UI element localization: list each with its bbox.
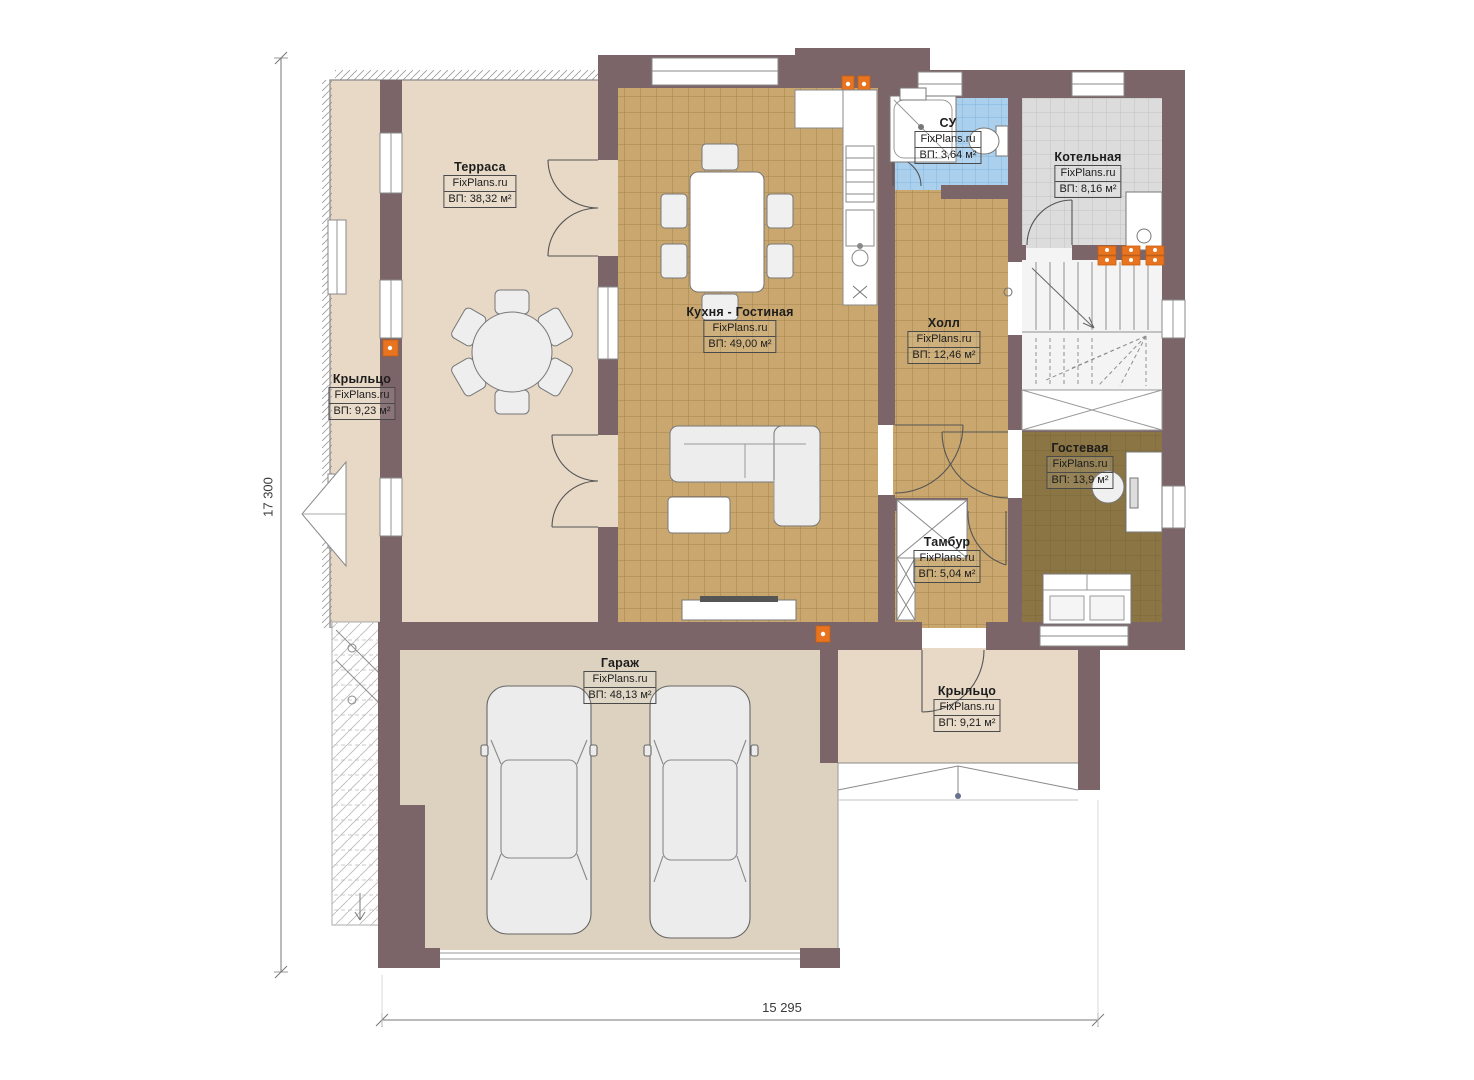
- room-name: СУ: [914, 116, 981, 130]
- room-area: ВП: 8,16 м²: [1055, 181, 1120, 197]
- room-label-porch-right: Крыльцо FixPlans.ru ВП: 9,21 м²: [933, 684, 1000, 732]
- room-label-hall: Холл FixPlans.ru ВП: 12,46 м²: [907, 316, 980, 364]
- floor-plan-drawing: [0, 0, 1474, 1080]
- room-label-kitchen-living: Кухня - Гостиная FixPlans.ru ВП: 49,00 м…: [686, 305, 793, 353]
- floor-plan-canvas: Терраса FixPlans.ru ВП: 38,32 м² Кухня -…: [0, 0, 1474, 1080]
- car-1: [481, 686, 597, 934]
- room-info-box: FixPlans.ru ВП: 13,9 м²: [1046, 456, 1113, 489]
- room-area: ВП: 48,13 м²: [584, 687, 655, 703]
- room-name: Котельная: [1054, 150, 1121, 164]
- room-area: ВП: 9,23 м²: [329, 403, 394, 419]
- brand-link[interactable]: FixPlans.ru: [914, 551, 979, 566]
- brand-link[interactable]: FixPlans.ru: [704, 321, 775, 336]
- brand-link[interactable]: FixPlans.ru: [1055, 166, 1120, 181]
- room-label-porch-left: Крыльцо FixPlans.ru ВП: 9,23 м²: [328, 372, 395, 420]
- room-info-box: FixPlans.ru ВП: 12,46 м²: [907, 331, 980, 364]
- brand-link[interactable]: FixPlans.ru: [329, 388, 394, 403]
- dimension-height-label: 17 300: [261, 477, 276, 517]
- brand-link[interactable]: FixPlans.ru: [934, 700, 999, 715]
- room-label-boiler: Котельная FixPlans.ru ВП: 8,16 м²: [1054, 150, 1121, 198]
- room-label-garage: Гараж FixPlans.ru ВП: 48,13 м²: [583, 656, 656, 704]
- room-info-box: FixPlans.ru ВП: 8,16 м²: [1054, 165, 1121, 198]
- room-area: ВП: 38,32 м²: [444, 191, 515, 207]
- room-info-box: FixPlans.ru ВП: 49,00 м²: [703, 320, 776, 353]
- room-area: ВП: 12,46 м²: [908, 347, 979, 363]
- room-area: ВП: 5,04 м²: [914, 566, 979, 582]
- room-label-terrace: Терраса FixPlans.ru ВП: 38,32 м²: [443, 160, 516, 208]
- room-info-box: FixPlans.ru ВП: 5,04 м²: [913, 550, 980, 583]
- brand-link[interactable]: FixPlans.ru: [584, 672, 655, 687]
- room-info-box: FixPlans.ru ВП: 9,23 м²: [328, 387, 395, 420]
- tv-bench: [682, 596, 796, 620]
- dimension-width-label: 15 295: [762, 1000, 802, 1015]
- boiler-fixtures: [1126, 192, 1162, 250]
- room-info-box: FixPlans.ru ВП: 38,32 м²: [443, 175, 516, 208]
- room-name: Гостевая: [1046, 441, 1113, 455]
- canopy-right: [838, 763, 1078, 800]
- room-label-vestibule: Тамбур FixPlans.ru ВП: 5,04 м²: [913, 535, 980, 583]
- brand-link[interactable]: FixPlans.ru: [915, 132, 980, 147]
- room-info-box: FixPlans.ru ВП: 3,64 м²: [914, 131, 981, 164]
- room-name: Кухня - Гостиная: [686, 305, 793, 319]
- room-label-guest: Гостевая FixPlans.ru ВП: 13,9 м²: [1046, 441, 1113, 489]
- room-label-bathroom: СУ FixPlans.ru ВП: 3,64 м²: [914, 116, 981, 164]
- brand-link[interactable]: FixPlans.ru: [1047, 457, 1112, 472]
- room-area: ВП: 13,9 м²: [1047, 472, 1112, 488]
- brand-link[interactable]: FixPlans.ru: [908, 332, 979, 347]
- room-area: ВП: 49,00 м²: [704, 336, 775, 352]
- room-area: ВП: 9,21 м²: [934, 715, 999, 731]
- brand-link[interactable]: FixPlans.ru: [444, 176, 515, 191]
- room-name: Терраса: [443, 160, 516, 174]
- room-info-box: FixPlans.ru ВП: 48,13 м²: [583, 671, 656, 704]
- room-info-box: FixPlans.ru ВП: 9,21 м²: [933, 699, 1000, 732]
- room-name: Холл: [907, 316, 980, 330]
- room-area: ВП: 3,64 м²: [915, 147, 980, 163]
- room-name: Гараж: [583, 656, 656, 670]
- room-name: Крыльцо: [933, 684, 1000, 698]
- car-2: [644, 686, 758, 938]
- room-name: Тамбур: [913, 535, 980, 549]
- room-name: Крыльцо: [328, 372, 395, 386]
